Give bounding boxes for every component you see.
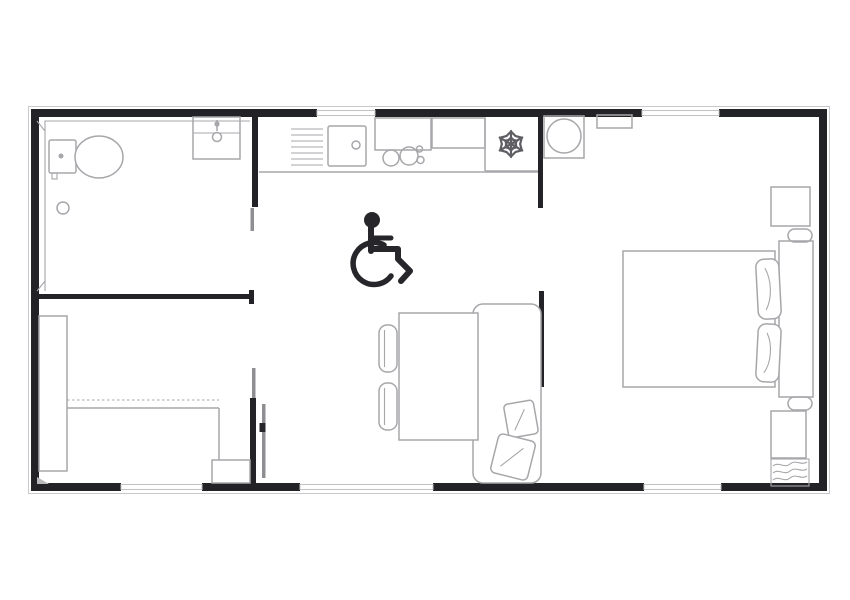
- bed-pillow-bottom: [755, 323, 781, 382]
- window-living: [300, 485, 433, 490]
- bed-headboard: [779, 241, 813, 397]
- small-bedroom-door-leaf: [262, 404, 266, 478]
- small-bedroom-door-wall: [250, 398, 256, 487]
- floor-plan-image: [0, 0, 850, 600]
- toilet: [49, 136, 123, 179]
- door-frame-stub: [252, 368, 256, 398]
- door-hinge: [260, 423, 266, 432]
- bed-pillow-top: [755, 258, 781, 319]
- window-bedroom-bottom: [644, 485, 721, 490]
- bathroom-right-wall: [252, 113, 258, 207]
- window-small-bedroom: [121, 485, 202, 490]
- window-kitchen: [317, 111, 375, 116]
- dining-table: [399, 313, 478, 440]
- bathroom-wall-endcap: [249, 290, 254, 304]
- bench-cushion-top: [503, 400, 538, 439]
- bathroom-door-leaf: [251, 208, 255, 231]
- floor-plan-svg: [0, 0, 850, 600]
- window-bedroom-top: [642, 111, 719, 116]
- bathroom-bottom-wall: [31, 294, 252, 299]
- kitchen-partition-wall: [538, 113, 543, 208]
